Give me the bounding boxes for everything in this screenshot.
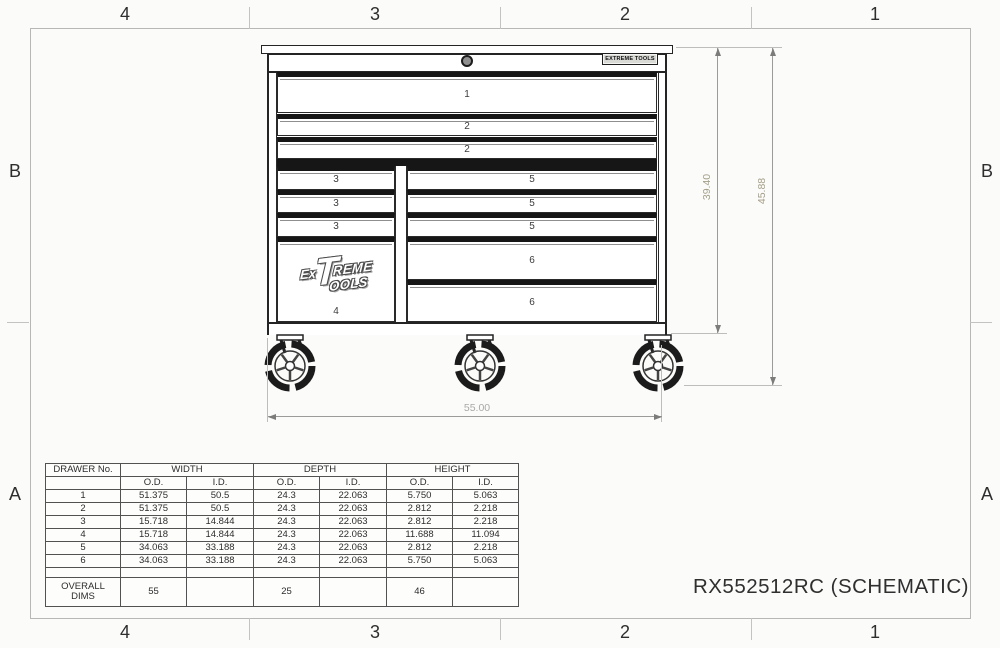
drawer-number: 1	[464, 90, 470, 100]
cell	[320, 578, 387, 607]
dimension-line-width	[268, 416, 662, 417]
drawer-1: 1	[277, 72, 657, 113]
zone-tick	[751, 7, 752, 29]
drawer-2-upper: 2	[277, 114, 657, 136]
table-row: 634.06333.18824.322.0635.7505.063	[46, 555, 519, 568]
zone-label-bottom-3: 3	[353, 622, 397, 643]
cabinet-right-rail	[658, 56, 666, 333]
zone-label-top-2: 2	[603, 4, 647, 25]
cell	[187, 578, 254, 607]
cell: 5	[46, 542, 121, 555]
cell: 34.063	[121, 542, 187, 555]
caster-left	[268, 335, 312, 388]
cell	[453, 568, 519, 578]
zone-label-left-b: B	[5, 161, 25, 182]
cell: 14.844	[187, 529, 254, 542]
cell: 22.063	[320, 555, 387, 568]
zone-label-top-3: 3	[353, 4, 397, 25]
dimension-label-body-height: 39.40	[701, 155, 715, 219]
drawer-5-top: 5	[407, 166, 657, 190]
cell: 50.5	[187, 490, 254, 503]
cell: 5.063	[453, 555, 519, 568]
cell: 2	[46, 503, 121, 516]
cell: 50.5	[187, 503, 254, 516]
subheader-id: I.D.	[187, 477, 254, 490]
cell: 22.063	[320, 529, 387, 542]
zone-label-top-4: 4	[103, 4, 147, 25]
table-row: 534.06333.18824.322.0632.8122.218	[46, 542, 519, 555]
cell: 2.218	[453, 516, 519, 529]
cell: 24.3	[254, 529, 320, 542]
table-row: 415.71814.84424.322.06311.68811.094	[46, 529, 519, 542]
zone-label-left-a: A	[5, 484, 25, 505]
cell: 24.3	[254, 555, 320, 568]
drawer-number: 3	[333, 199, 339, 209]
brand-badge: EXTREME TOOLS	[602, 53, 658, 65]
cell	[387, 568, 453, 578]
dimension-line-overall-height	[772, 48, 773, 385]
cell: 4	[46, 529, 121, 542]
drawer-6-upper: 6	[407, 237, 657, 280]
extension-line	[671, 333, 727, 334]
zone-tick	[500, 618, 501, 640]
subheader-blank	[46, 477, 121, 490]
subheader-id: I.D.	[320, 477, 387, 490]
cell: 22.063	[320, 490, 387, 503]
arrowhead-icon	[268, 414, 276, 420]
cabinet-left-rail	[269, 56, 277, 333]
brand-badge-label: EXTREME TOOLS	[605, 56, 655, 62]
drawer-number: 5	[529, 222, 535, 232]
drawer-number: 3	[333, 222, 339, 232]
arrowhead-icon	[770, 377, 776, 385]
cell: 11.688	[387, 529, 453, 542]
cell: 2.812	[387, 503, 453, 516]
cell: 5.750	[387, 490, 453, 503]
drawer-number: 3	[333, 175, 339, 185]
drawer-5-bottom: 5	[407, 213, 657, 237]
cell: 24.3	[254, 490, 320, 503]
drawer-3-bottom: 3	[277, 213, 395, 237]
cell: 3	[46, 516, 121, 529]
header-width: WIDTH	[121, 464, 254, 477]
subheader-od: O.D.	[121, 477, 187, 490]
zone-label-right-b: B	[977, 161, 997, 182]
cell: 1	[46, 490, 121, 503]
caster-right	[636, 335, 680, 388]
subheader-id: I.D.	[453, 477, 519, 490]
extension-line	[661, 345, 662, 422]
header-drawer-no: DRAWER No.	[46, 464, 121, 477]
overall-height: 46	[387, 578, 453, 607]
caster-middle	[458, 335, 502, 388]
table-overall-row: OVERALL DIMS 55 25 46	[46, 578, 519, 607]
lock-icon	[461, 55, 473, 67]
overall-dims-label: OVERALL DIMS	[46, 578, 121, 607]
arrowhead-icon	[715, 325, 721, 333]
cell: 51.375	[121, 490, 187, 503]
cell: 22.063	[320, 503, 387, 516]
cell	[320, 568, 387, 578]
drawer-6-lower: 6	[407, 280, 657, 322]
cell: 2.218	[453, 503, 519, 516]
cell	[187, 568, 254, 578]
arrowhead-icon	[654, 414, 662, 420]
drawer-number: 5	[529, 175, 535, 185]
drawer-spec-table: DRAWER No. WIDTH DEPTH HEIGHT O.D. I.D. …	[45, 463, 519, 607]
extension-line	[676, 47, 782, 48]
table-subheader-row: O.D. I.D. O.D. I.D. O.D. I.D.	[46, 477, 519, 490]
header-height: HEIGHT	[387, 464, 519, 477]
overall-depth: 25	[254, 578, 320, 607]
zone-tick	[500, 7, 501, 29]
zone-tick	[249, 7, 250, 29]
drawer-2-lower: 2	[277, 137, 657, 159]
cell: 22.063	[320, 516, 387, 529]
table-spacer-row	[46, 568, 519, 578]
extreme-tools-logo: Ex T REME OOLS	[299, 254, 373, 297]
arrowhead-icon	[715, 48, 721, 56]
table-row: 151.37550.524.322.0635.7505.063	[46, 490, 519, 503]
frame-crossmember	[277, 159, 657, 166]
cell: 34.063	[121, 555, 187, 568]
zone-tick	[249, 618, 250, 640]
cell	[121, 568, 187, 578]
logo-big-t: T	[314, 252, 339, 293]
cell: 14.844	[187, 516, 254, 529]
overall-width: 55	[121, 578, 187, 607]
zone-label-right-a: A	[977, 484, 997, 505]
drawer-number: 2	[464, 145, 470, 155]
cell: 2.812	[387, 516, 453, 529]
extension-line	[267, 338, 268, 422]
header-depth: DEPTH	[254, 464, 387, 477]
cell: 2.812	[387, 542, 453, 555]
cell: 24.3	[254, 516, 320, 529]
zone-tick	[970, 322, 992, 323]
cell: 15.718	[121, 529, 187, 542]
cell: 24.3	[254, 503, 320, 516]
zone-label-top-1: 1	[853, 4, 897, 25]
drawer-number: 5	[529, 199, 535, 209]
cell: 5.750	[387, 555, 453, 568]
drawer-4: Ex T REME OOLS 4	[277, 237, 395, 322]
cell: 11.094	[453, 529, 519, 542]
drawer-5-middle: 5	[407, 190, 657, 213]
cell: 5.063	[453, 490, 519, 503]
dimension-line-body-height	[717, 48, 718, 333]
subheader-od: O.D.	[387, 477, 453, 490]
dimension-label-width: 55.00	[447, 402, 507, 414]
cell: 33.188	[187, 542, 254, 555]
cell	[46, 568, 121, 578]
arrowhead-icon	[770, 48, 776, 56]
zone-tick	[7, 322, 29, 323]
table-row: 315.71814.84424.322.0632.8122.218	[46, 516, 519, 529]
drawer-3-top: 3	[277, 166, 395, 190]
dimension-label-overall-height: 45.88	[756, 159, 770, 223]
drawer-number: 6	[529, 256, 535, 266]
center-divider-panel	[395, 166, 407, 322]
drawer-number: 6	[529, 298, 535, 308]
cell: 2.218	[453, 542, 519, 555]
cell	[453, 578, 519, 607]
casters-drawing	[255, 334, 685, 396]
cell: 33.188	[187, 555, 254, 568]
zone-tick	[751, 618, 752, 640]
extension-line	[684, 385, 782, 386]
cell: 15.718	[121, 516, 187, 529]
cell: 6	[46, 555, 121, 568]
subheader-od: O.D.	[254, 477, 320, 490]
zone-label-bottom-2: 2	[603, 622, 647, 643]
drawer-3-middle: 3	[277, 190, 395, 213]
cell: 51.375	[121, 503, 187, 516]
table-group-header-row: DRAWER No. WIDTH DEPTH HEIGHT	[46, 464, 519, 477]
zone-label-bottom-1: 1	[853, 622, 897, 643]
zone-label-bottom-4: 4	[103, 622, 147, 643]
drawer-number: 2	[464, 122, 470, 132]
cell	[254, 568, 320, 578]
drawing-title: RX552512RC (SCHEMATIC)	[693, 575, 969, 599]
table-row: 251.37550.524.322.0632.8122.218	[46, 503, 519, 516]
drawer-number: 4	[278, 307, 394, 317]
cell: 24.3	[254, 542, 320, 555]
cell: 22.063	[320, 542, 387, 555]
schematic-page: 4 3 2 1 4 3 2 1 B A B A EXTREME TOOLS 1 …	[0, 0, 1000, 648]
